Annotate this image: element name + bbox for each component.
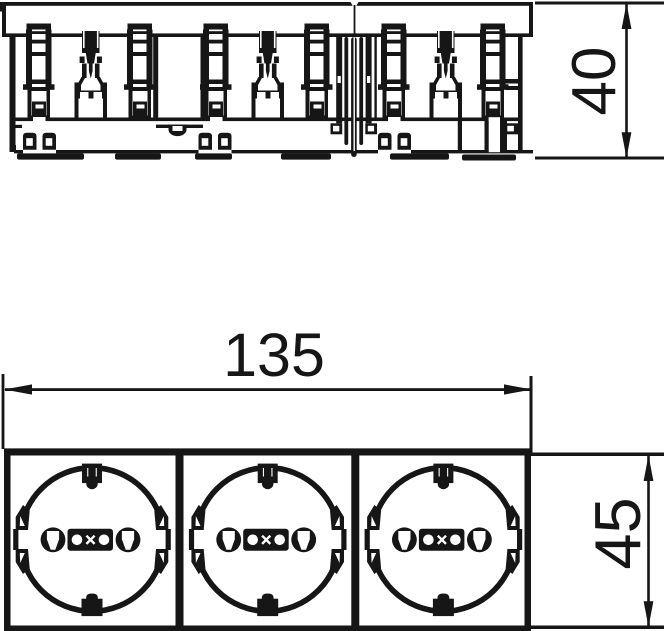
svg-text:135: 135 <box>223 321 325 389</box>
svg-text:45: 45 <box>581 497 654 569</box>
svg-text:40: 40 <box>560 47 629 116</box>
